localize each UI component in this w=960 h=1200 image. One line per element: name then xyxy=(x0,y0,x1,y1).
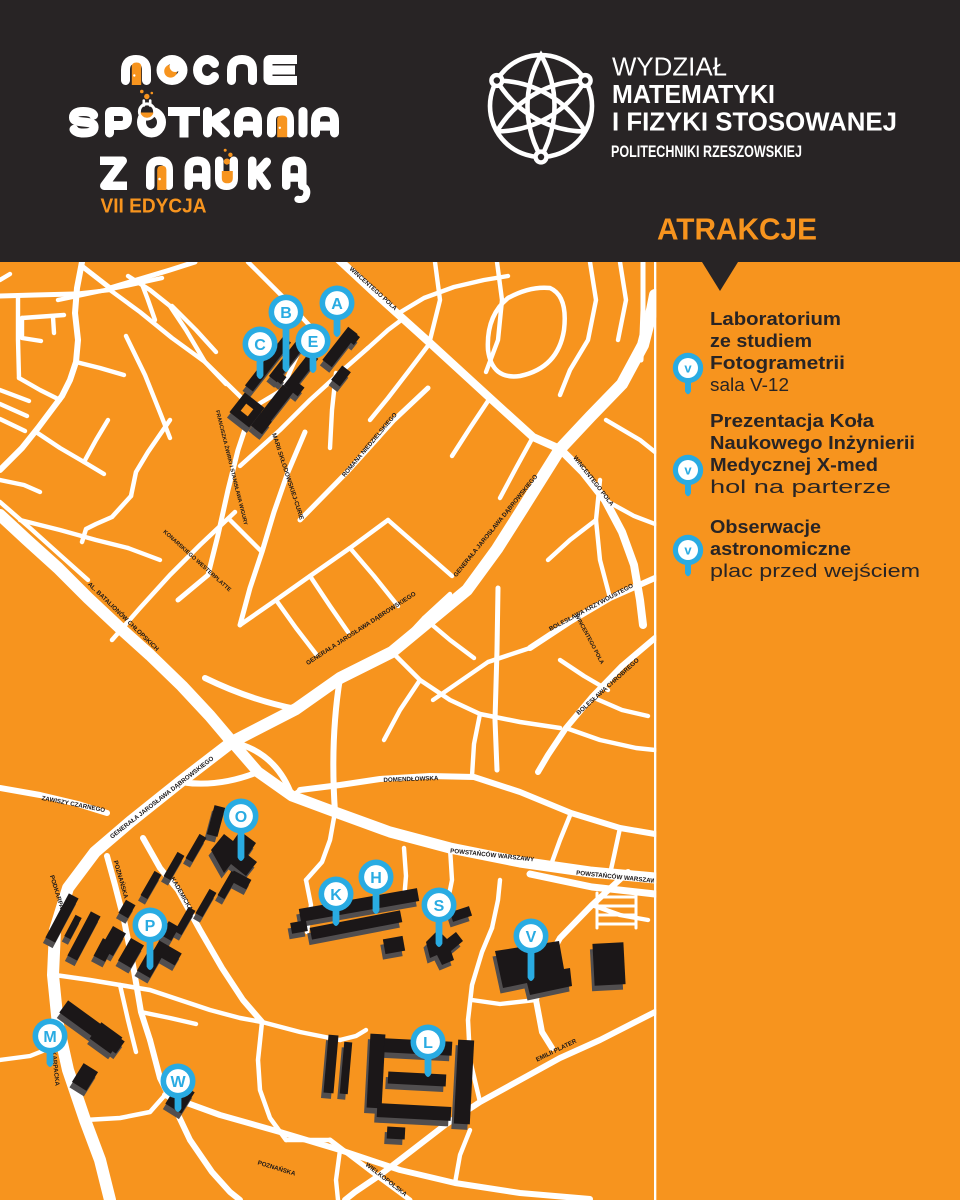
svg-text:W: W xyxy=(170,1074,186,1091)
svg-text:M: M xyxy=(43,1029,56,1046)
svg-text:B: B xyxy=(280,305,292,322)
svg-text:A: A xyxy=(331,296,343,313)
svg-text:v: v xyxy=(684,361,692,376)
svg-text:H: H xyxy=(370,870,382,887)
svg-text:V: V xyxy=(526,929,537,946)
svg-text:POLITECHNIKI RZESZOWSKIEJ: POLITECHNIKI RZESZOWSKIEJ xyxy=(611,142,802,161)
svg-text:v: v xyxy=(684,463,692,478)
svg-text:I FIZYKI STOSOWANEJ: I FIZYKI STOSOWANEJ xyxy=(612,109,897,137)
svg-text:sala V-12: sala V-12 xyxy=(710,375,789,395)
svg-text:Obserwacje: Obserwacje xyxy=(710,517,821,537)
svg-text:P: P xyxy=(145,918,156,935)
svg-text:ze studiem: ze studiem xyxy=(710,331,812,351)
svg-text:VII EDYCJA: VII EDYCJA xyxy=(101,195,207,218)
svg-text:v: v xyxy=(684,543,692,558)
svg-text:astronomiczne: astronomiczne xyxy=(710,539,851,559)
svg-text:hol na parterze: hol na parterze xyxy=(710,477,891,497)
svg-text:O: O xyxy=(235,809,247,826)
svg-text:Naukowego Inżynierii: Naukowego Inżynierii xyxy=(710,433,915,453)
svg-text:S: S xyxy=(434,898,445,915)
svg-text:C: C xyxy=(254,337,266,354)
svg-text:L: L xyxy=(423,1035,433,1052)
svg-text:Medycznej X-med: Medycznej X-med xyxy=(710,455,878,475)
svg-text:Fotogrametrii: Fotogrametrii xyxy=(710,353,845,373)
svg-text:Laboratorium: Laboratorium xyxy=(710,309,841,329)
svg-text:WYDZIAŁ: WYDZIAŁ xyxy=(612,52,727,82)
svg-text:E: E xyxy=(308,334,319,351)
svg-text:plac przed wejściem: plac przed wejściem xyxy=(710,561,920,581)
svg-text:K: K xyxy=(330,887,342,904)
svg-text:MATEMATYKI: MATEMATYKI xyxy=(612,81,775,109)
svg-text:ATRAKCJE: ATRAKCJE xyxy=(657,212,817,247)
svg-text:Prezentacja Koła: Prezentacja Koła xyxy=(710,411,875,431)
